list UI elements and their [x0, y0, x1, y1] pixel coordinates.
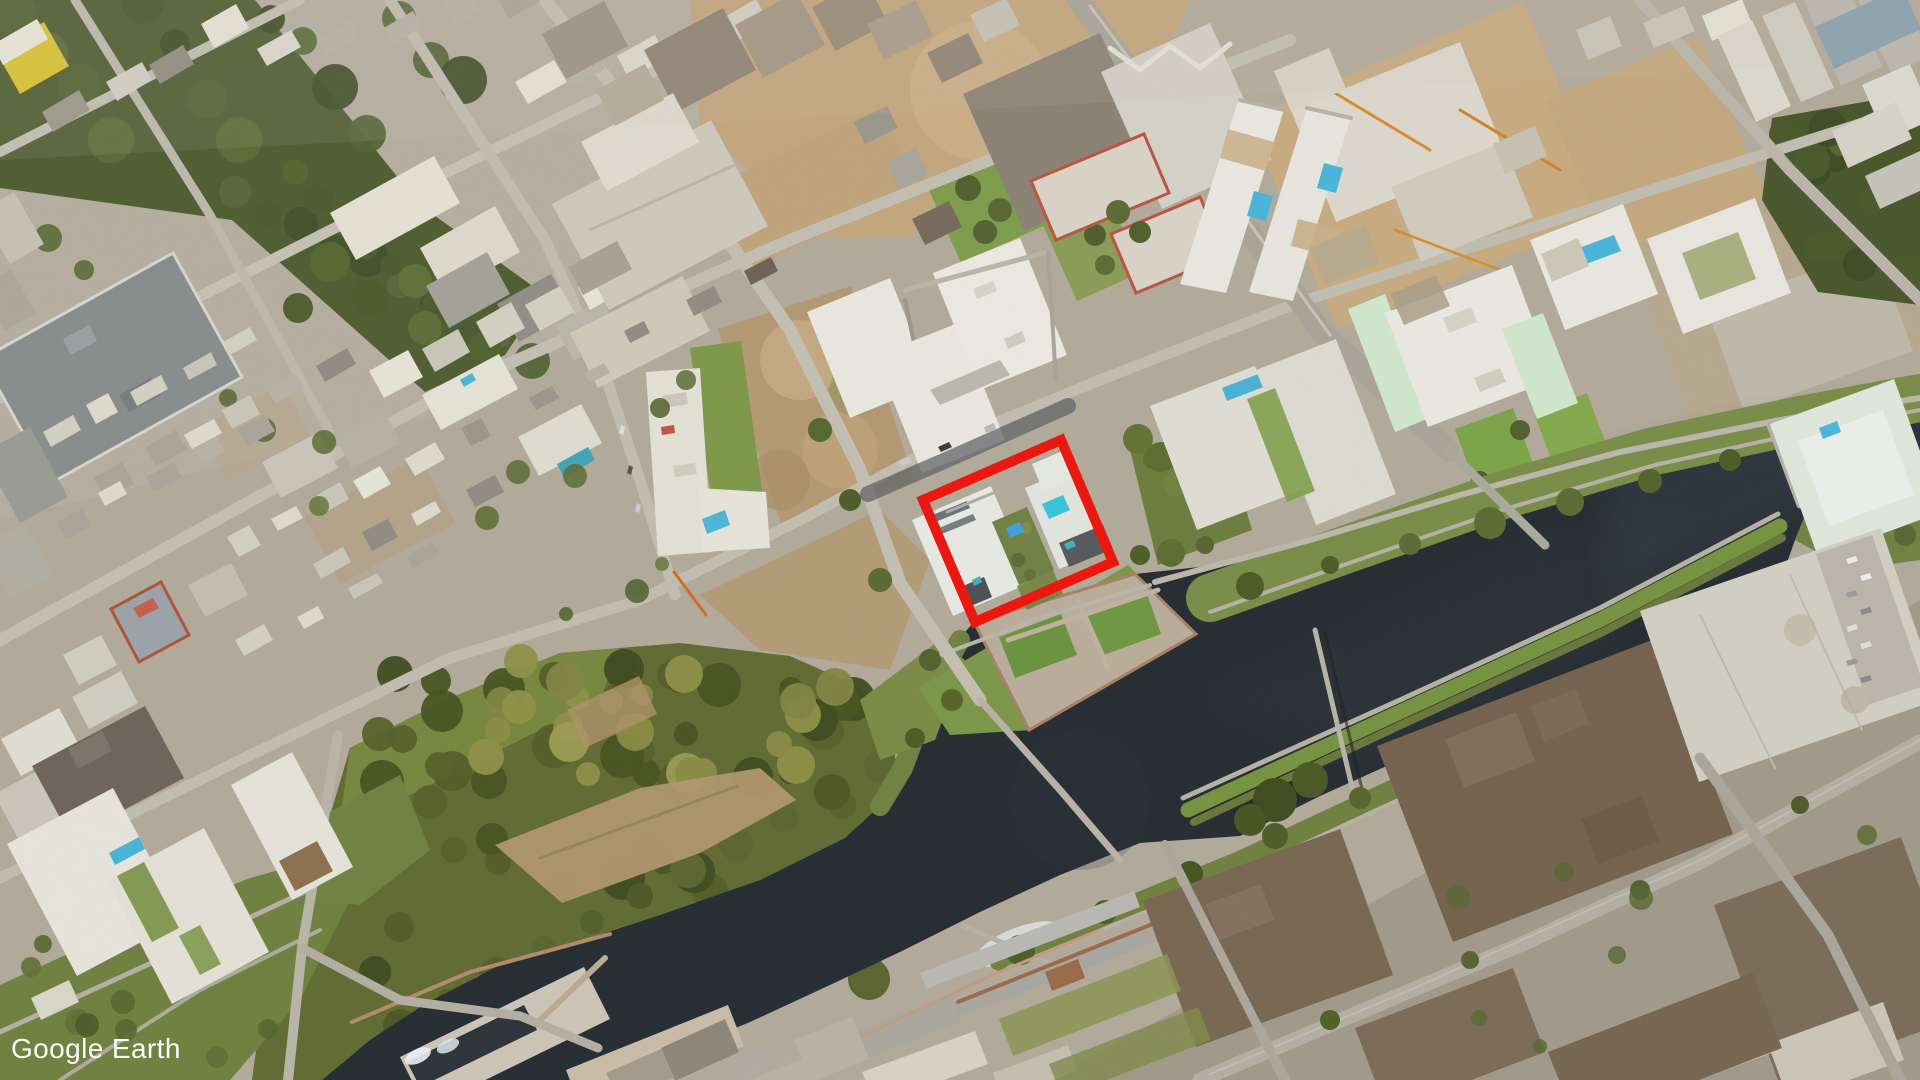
svg-text:Google Earth: Google Earth [11, 1033, 181, 1064]
